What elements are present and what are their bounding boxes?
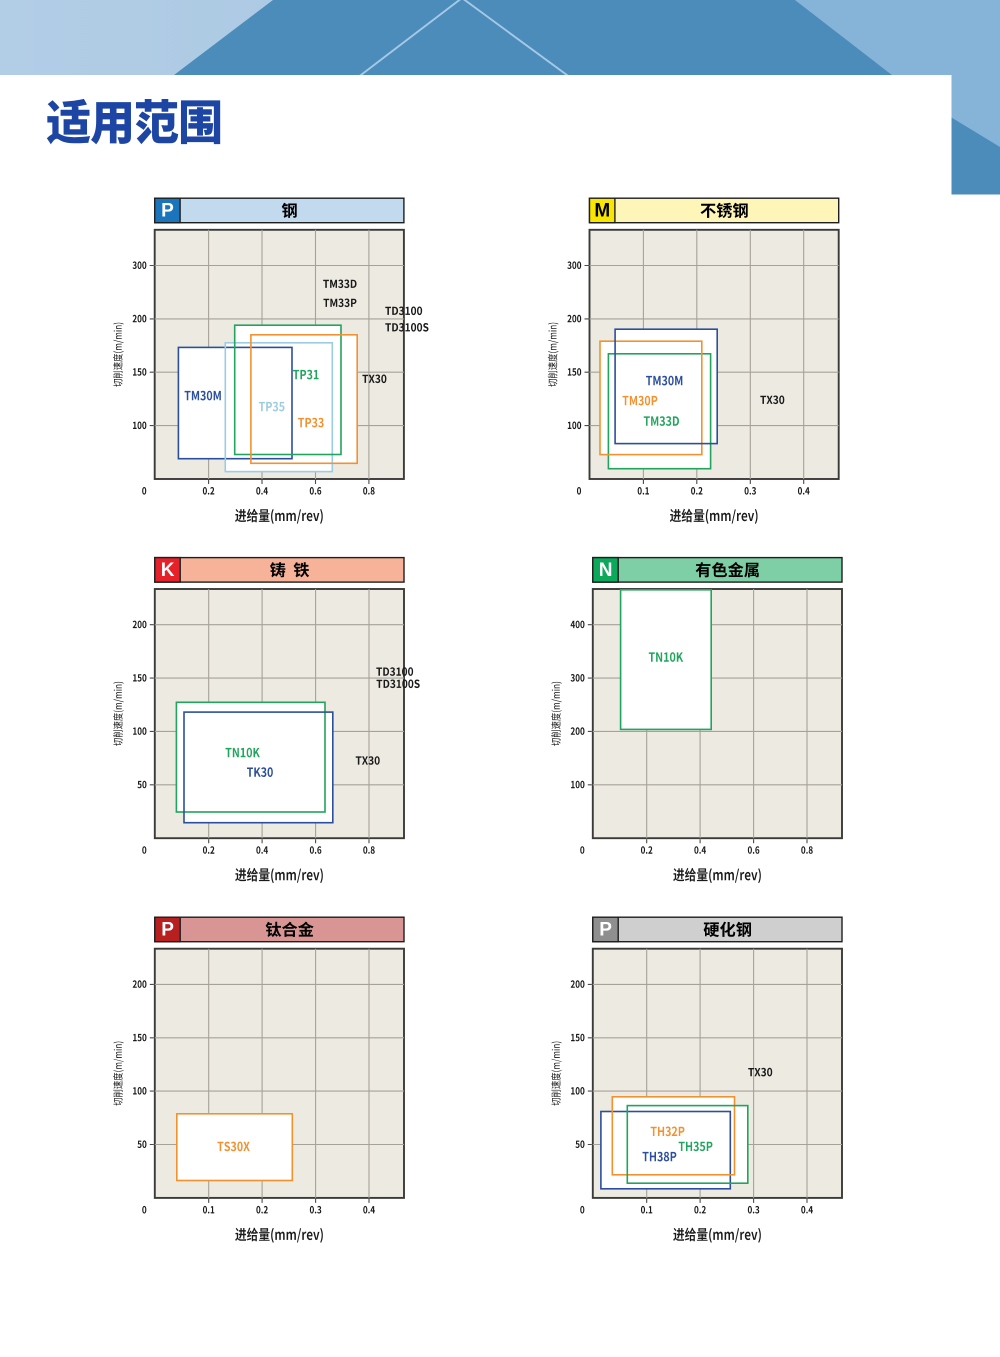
svg-text:K: K [161, 560, 175, 581]
svg-text:P: P [599, 920, 612, 941]
svg-text:M: M [594, 201, 610, 222]
svg-text:P: P [161, 920, 174, 941]
svg-text:P: P [161, 201, 174, 222]
svg-text:N: N [599, 560, 613, 581]
